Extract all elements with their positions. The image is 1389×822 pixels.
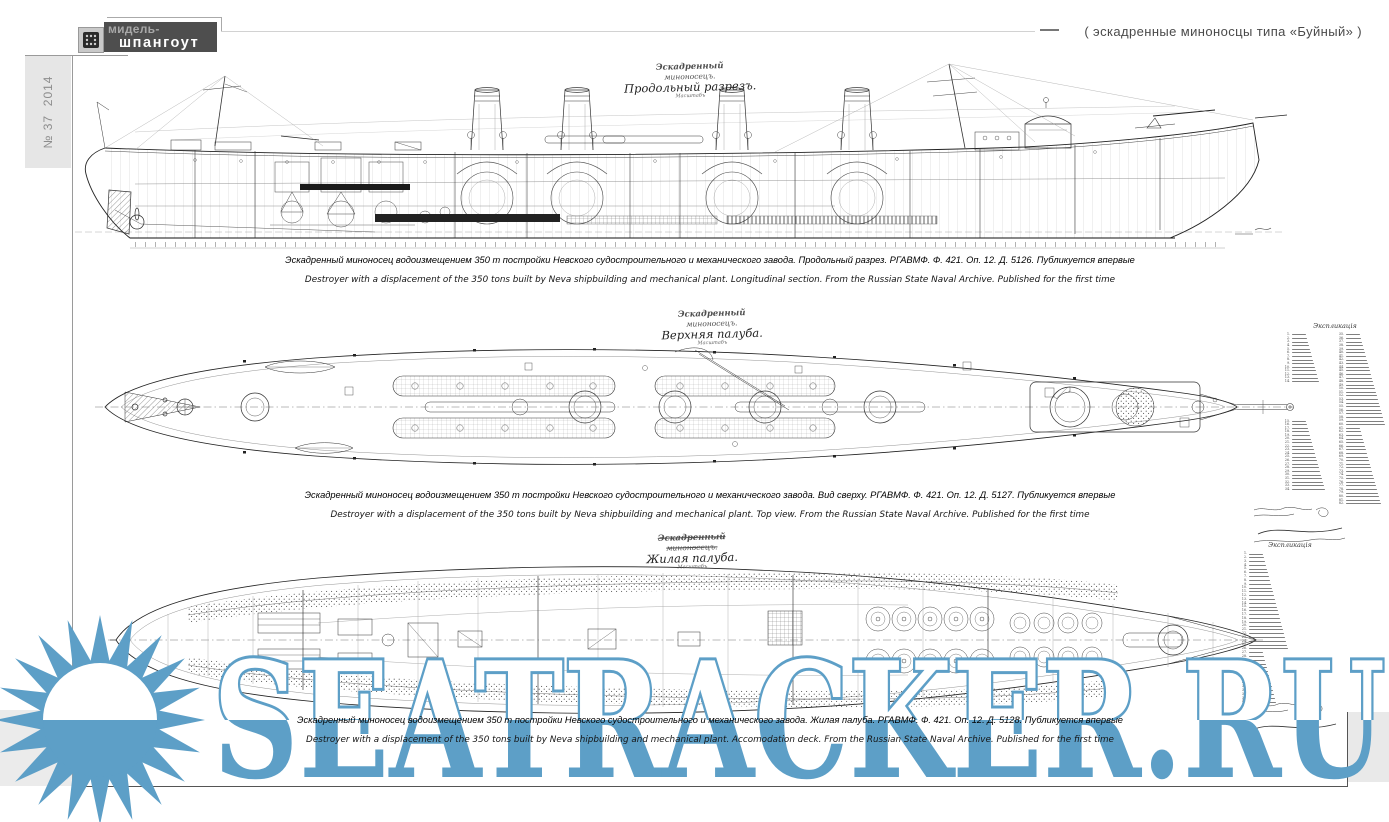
magazine-logo-line2: шпангоут: [119, 36, 217, 51]
caption-en: Destroyer with a displacement of the 350…: [110, 511, 1310, 520]
drawing-longitudinal-section: Эскадренный миноносецъ. Продольный разре…: [75, 62, 1290, 252]
sheet-title-accommodation: Эскадренный миноносецъ. Жилая палуба. Ма…: [612, 532, 773, 573]
header-rule-step: [221, 17, 222, 31]
sheet-title-longitudinal: Эскадренный миноносецъ. Продольный разре…: [600, 61, 781, 102]
issue-number: № 37 2014: [41, 76, 55, 149]
publisher-logo: [78, 27, 104, 53]
caption-longitudinal: Эскадренный миноносец водоизмещением 350…: [110, 256, 1310, 285]
series-title: ( эскадренные миноносцы типа «Буйный» ): [1084, 24, 1362, 39]
issue-number-box: № 37 2014: [25, 56, 71, 168]
logo-emblem-icon: [83, 32, 99, 48]
explication-items: 35.36.37.38.39.40.41.42.43.44.45.46.47.4…: [1337, 333, 1387, 506]
frame-top-line: [25, 55, 128, 56]
caption-en: Destroyer with a displacement of the 350…: [110, 736, 1310, 745]
magazine-logo: мидель- шпангоут: [104, 22, 217, 52]
explication-title: Экспликація: [1240, 541, 1340, 549]
explication-items: 1.2.3.4.5.6.7.8.9.10.11.12.13.14.: [1283, 333, 1333, 383]
header-rule-top: [107, 17, 221, 18]
upper-deck-blueprint: [95, 330, 1295, 482]
explication-title: Экспликація: [1283, 322, 1387, 330]
header-dash: [1040, 29, 1059, 31]
caption-upper-deck: Эскадренный миноносец водоизмещением 350…: [110, 491, 1310, 520]
caption-ru: Эскадренный миноносец водоизмещением 350…: [110, 491, 1310, 500]
caption-en: Destroyer with a displacement of the 350…: [110, 276, 1310, 285]
seatracker-watermark: SEATRACKER.RU SEATRACKER.RU: [0, 600, 1389, 822]
caption-ru: Эскадренный миноносец водоизмещением 350…: [110, 716, 1310, 725]
drawing-upper-deck: Эскадренный миноносецъ. Верхняя палуба. …: [95, 330, 1295, 482]
header-rule-long: [221, 31, 1035, 32]
caption-accommodation: Эскадренный миноносец водоизмещением 350…: [110, 716, 1310, 745]
explication-items: 15.16.17.18.19.20.21.22.23.24.25.26.27.2…: [1283, 419, 1333, 491]
magazine-logo-line1: мидель-: [108, 23, 217, 36]
explication-list-upper-deck: Экспликація 1.2.3.4.5.6.7.8.9.10.11.12.1…: [1283, 322, 1387, 506]
magazine-page: мидель- шпангоут ( эскадренные миноносцы…: [0, 0, 1389, 822]
caption-ru: Эскадренный миноносец водоизмещением 350…: [110, 256, 1310, 265]
sheet-title-upper-deck: Эскадренный миноносецъ. Верхняя палуба. …: [632, 308, 793, 349]
